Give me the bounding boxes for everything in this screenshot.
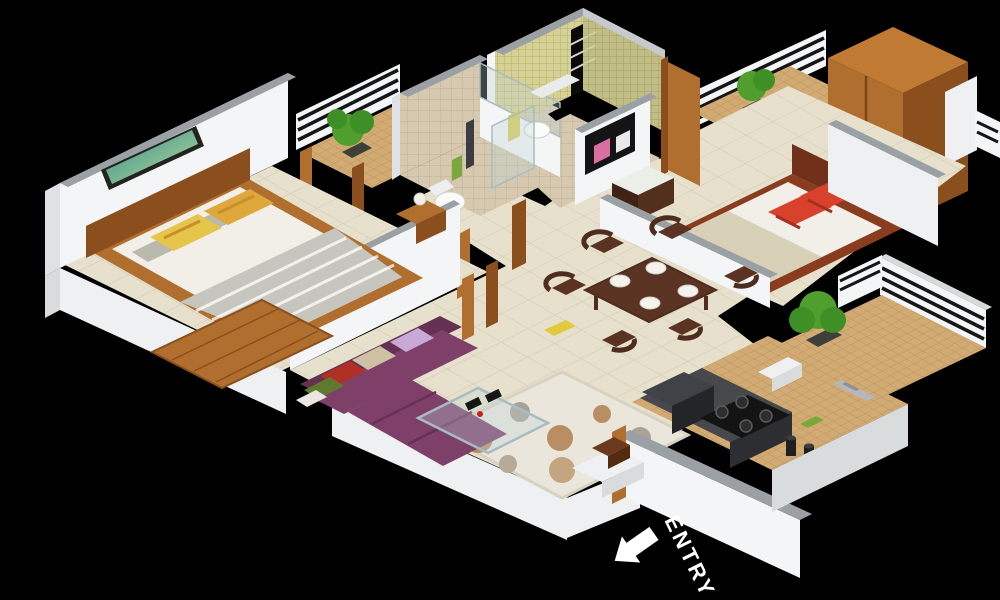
jar-lid [804,444,814,449]
door-post [512,199,526,270]
door-post [486,260,498,328]
open-door [668,62,700,186]
potted-plant-icon [820,307,846,333]
potted-plant-icon [753,69,775,91]
plate [678,285,698,297]
rug-circle [549,457,575,483]
potted-plant-icon [327,109,347,129]
potted-plant-icon [350,110,374,134]
plate [610,275,630,287]
rug-circle [499,455,517,473]
rug-circle [547,425,573,451]
door-frame [661,56,668,176]
burner [716,406,728,418]
jar [786,438,796,456]
potted-plant-icon [789,307,815,333]
wall-end [392,93,400,180]
jar-lid [786,436,796,441]
plate [640,297,660,309]
red-item [477,411,483,417]
burner [736,396,748,408]
plinth-side [45,268,60,318]
lamp-icon [414,193,426,205]
wall-end [45,183,60,276]
floor-plan-render: ENTRY [0,0,1000,600]
plate [646,262,666,274]
window-grill [571,24,583,96]
rug-circle [593,405,611,423]
shower-panel [466,119,474,169]
isometric-scene: ENTRY [0,0,1000,600]
door-post [462,273,474,341]
burner [760,410,772,422]
burner [740,420,752,432]
